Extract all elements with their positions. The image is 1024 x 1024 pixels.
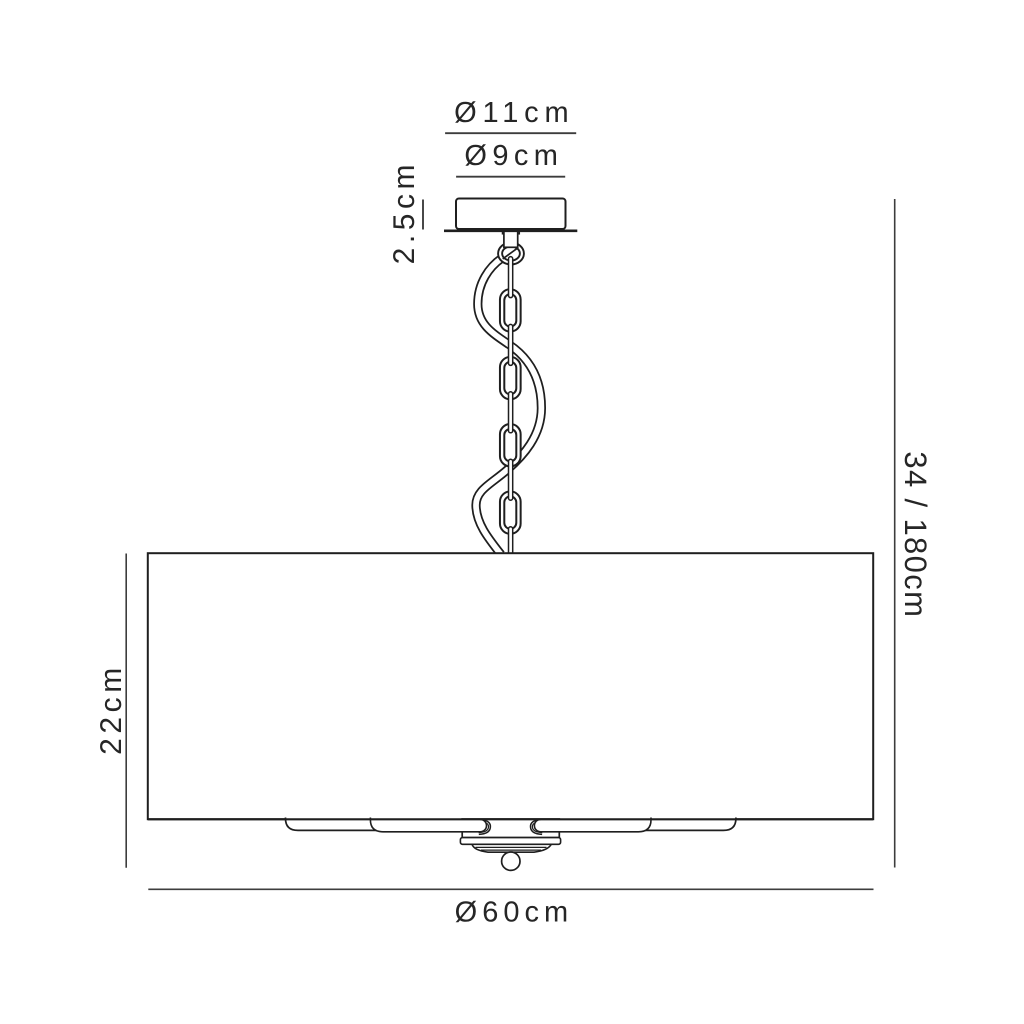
svg-text:34 / 180cm: 34 / 180cm xyxy=(898,451,933,618)
svg-text:Ø11cm: Ø11cm xyxy=(454,97,574,129)
svg-text:Ø60cm: Ø60cm xyxy=(455,897,573,929)
svg-text:22cm: 22cm xyxy=(95,663,128,755)
svg-text:Ø9cm: Ø9cm xyxy=(464,140,563,172)
svg-text:2.5cm: 2.5cm xyxy=(388,160,421,264)
